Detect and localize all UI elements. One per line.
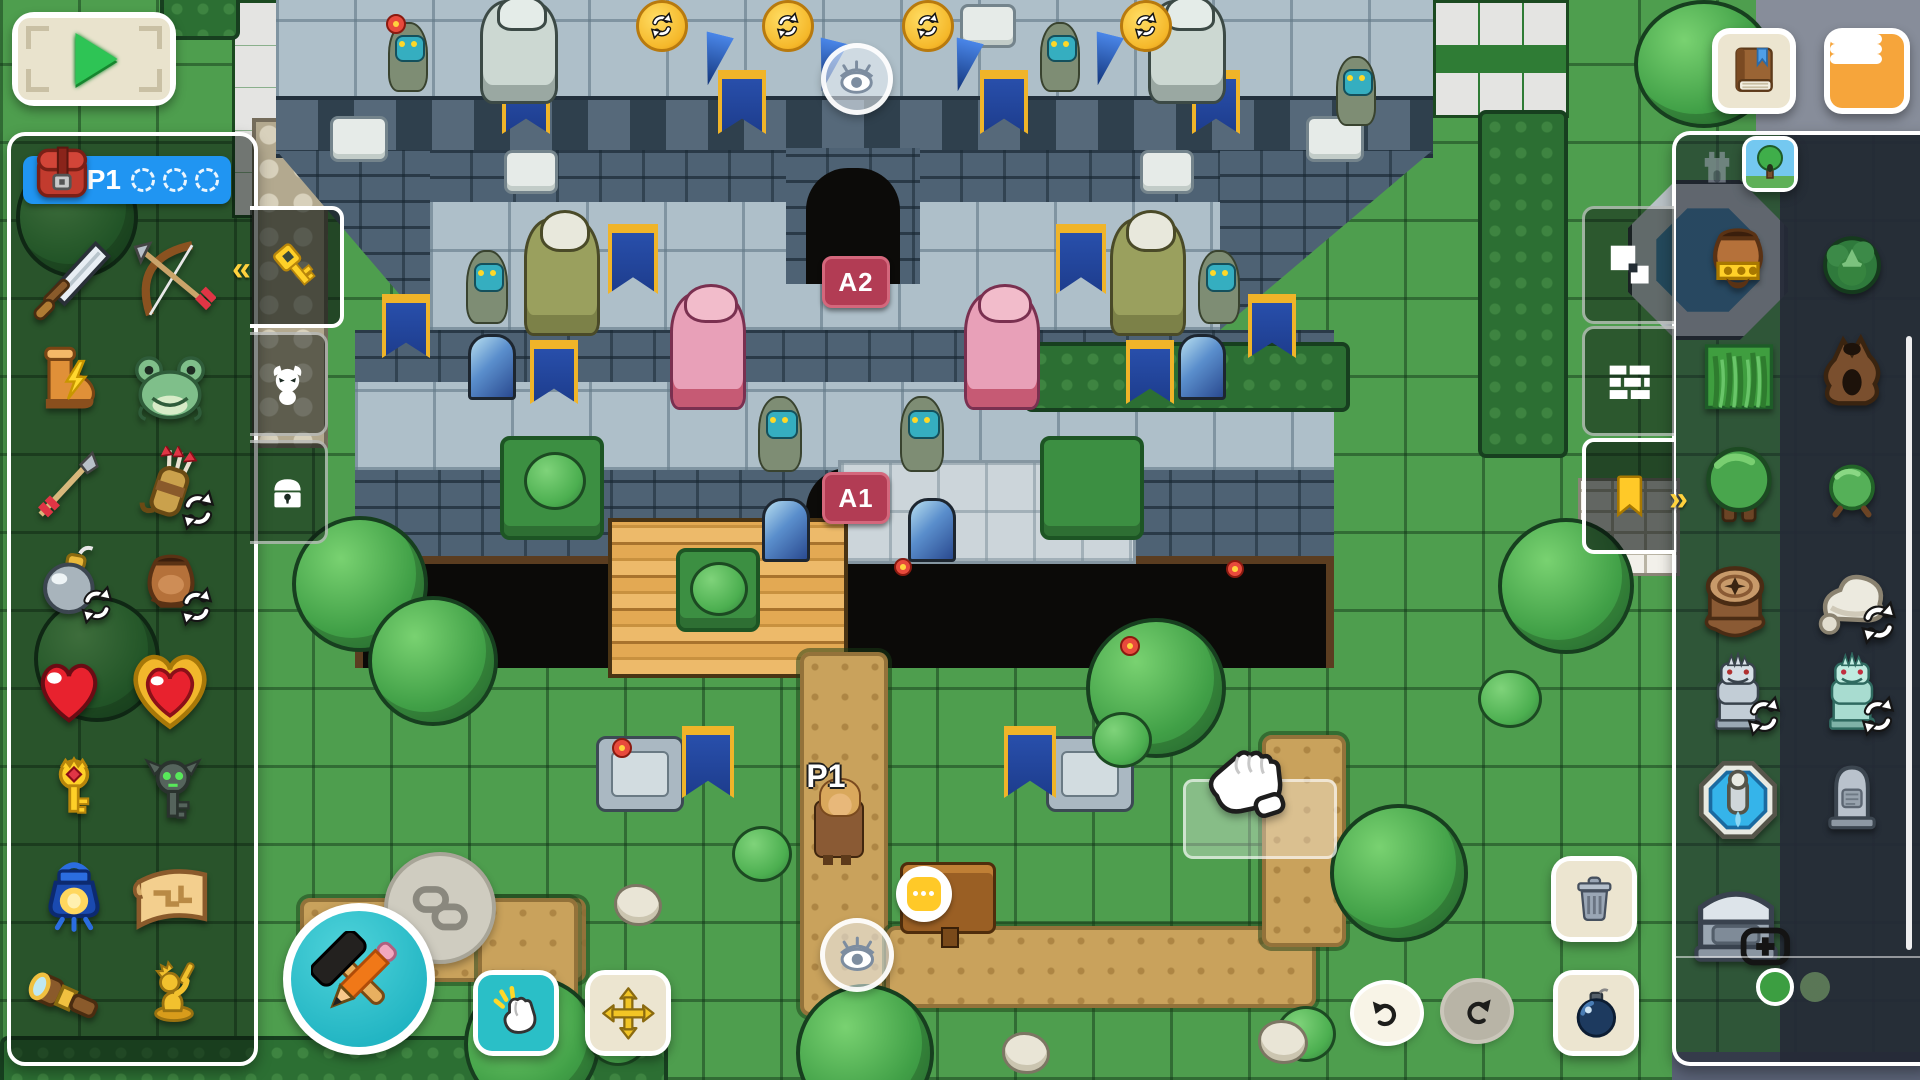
tile-item-money-pot[interactable] xyxy=(1698,220,1778,300)
tab-decor-tiles[interactable]: » xyxy=(1582,438,1674,554)
cycle-variants-badge xyxy=(1856,694,1900,738)
frame-corner xyxy=(26,69,49,92)
add-badge xyxy=(1739,919,1794,974)
move-tool-button[interactable] xyxy=(585,970,671,1056)
edit-tools-button[interactable] xyxy=(283,903,435,1055)
tile-item-rock[interactable] xyxy=(1808,554,1894,640)
undo-button[interactable] xyxy=(1354,984,1420,1042)
tile-item-bush[interactable] xyxy=(1816,450,1888,522)
hammer-pencil-icon xyxy=(311,931,406,1026)
item-slot[interactable] xyxy=(131,168,155,192)
tree-thumbnail-icon xyxy=(1746,140,1794,188)
expand-right-chevron[interactable]: » xyxy=(1669,482,1688,516)
tab-wall-tiles[interactable] xyxy=(1582,326,1674,436)
palette-scrollbar[interactable] xyxy=(1906,336,1912,950)
undo-icon xyxy=(1370,996,1403,1031)
play-icon xyxy=(76,33,118,85)
book-icon xyxy=(1726,42,1782,100)
tile-item-sarcophagus[interactable] xyxy=(1686,868,1786,968)
frame-corner xyxy=(26,26,49,49)
tile-item-fountain[interactable] xyxy=(1694,756,1782,844)
hamburger-icon xyxy=(1830,34,1904,108)
cycle-variants-badge xyxy=(1855,599,1902,646)
page-dot-1[interactable] xyxy=(1756,968,1794,1006)
tile-item-stump[interactable] xyxy=(1692,554,1778,640)
level-editor-screen: P1A2A1 P1 « » xyxy=(0,0,1920,1080)
tile-item-gravestone[interactable] xyxy=(1814,758,1890,834)
item-slot[interactable] xyxy=(195,168,219,192)
backpack-icon[interactable] xyxy=(28,138,96,204)
move-arrows-icon xyxy=(601,986,656,1041)
page-dot-2[interactable] xyxy=(1800,972,1830,1002)
tap-tool-button[interactable] xyxy=(473,970,559,1056)
tile-item-dark-bush[interactable] xyxy=(1814,224,1890,300)
bomb-icon xyxy=(1569,986,1624,1041)
tile-item-grass-tile[interactable] xyxy=(1698,334,1780,416)
tile-item-tree[interactable] xyxy=(1696,442,1782,528)
play-frame xyxy=(18,18,170,100)
trash-icon xyxy=(1567,872,1622,927)
bricks-icon xyxy=(1603,350,1656,412)
guide-book-button[interactable] xyxy=(1712,28,1796,114)
frame-corner xyxy=(139,26,162,49)
tap-hand-icon xyxy=(489,986,544,1041)
palette-divider xyxy=(1676,956,1920,958)
tower-icon xyxy=(1696,140,1738,190)
redo-button[interactable] xyxy=(1444,982,1510,1040)
tile-item-gargoyle-teal[interactable] xyxy=(1812,652,1892,732)
delete-tool-button[interactable] xyxy=(1551,856,1637,942)
frame-corner xyxy=(139,69,162,92)
redo-icon xyxy=(1460,994,1493,1029)
item-slots xyxy=(131,168,219,192)
item-slot[interactable] xyxy=(163,168,187,192)
bomb-tool-button[interactable] xyxy=(1553,970,1639,1056)
menu-button[interactable] xyxy=(1824,28,1910,114)
tab-ground-tiles[interactable] xyxy=(1582,206,1674,324)
tab-overworld-tileset[interactable] xyxy=(1742,136,1798,192)
tile-item-gargoyle-gray[interactable] xyxy=(1698,652,1778,732)
cycle-variants-badge xyxy=(1742,694,1786,738)
tab-dungeon-tileset[interactable] xyxy=(1696,140,1738,190)
squares-icon xyxy=(1603,231,1656,298)
play-button[interactable] xyxy=(12,12,176,106)
bookmark-icon xyxy=(1605,466,1654,526)
tile-item-dead-tree[interactable] xyxy=(1810,328,1894,412)
